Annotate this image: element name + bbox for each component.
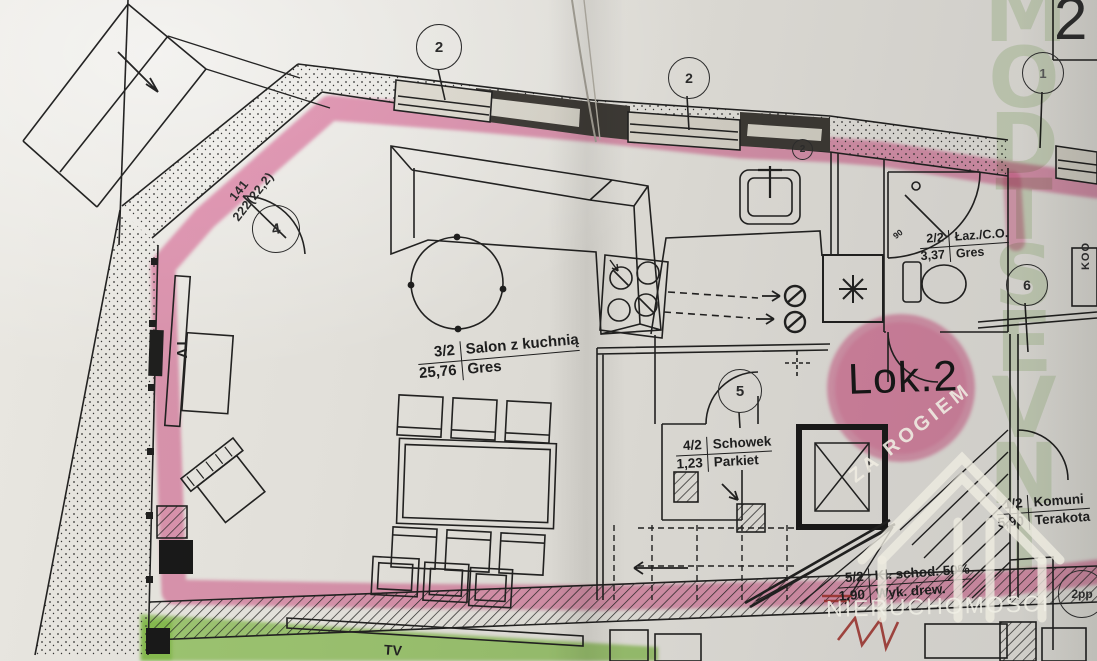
room-area: 3,37 <box>920 247 951 265</box>
floorplan-photo: M O D T S E V N I <box>0 0 1097 661</box>
asterisk-symbol <box>839 275 867 303</box>
side-room-text: KOO <box>1080 226 1092 286</box>
kitchen <box>600 166 883 338</box>
corridor-door <box>1018 430 1068 480</box>
sofa <box>391 146 661 334</box>
kitchen-counter <box>651 231 822 334</box>
round-rug <box>408 234 507 333</box>
room-number: 1/2 <box>996 495 1029 515</box>
dining-chairs <box>391 395 551 575</box>
armchair <box>181 438 271 527</box>
marker-bathroom: 6 <box>1006 264 1048 306</box>
boiler <box>823 255 883 322</box>
marker-window-top-left: 2 <box>416 24 462 70</box>
room-number: 4/2 <box>675 437 708 457</box>
room-area: 25,76 <box>418 361 463 383</box>
marker-storage-door: 5 <box>718 369 762 413</box>
sheet-number: 2 <box>1054 0 1087 53</box>
toilet <box>903 262 966 303</box>
room-label-bathroom: 2/2 Łaz./C.O. 3,37 Gres <box>919 226 1010 264</box>
stair-direction-arrow <box>634 562 688 574</box>
dining-table <box>397 438 557 528</box>
room-label-storage: 4/2 Schowek 1,23 Parkiet <box>675 434 772 474</box>
room-area: 5,90 <box>997 513 1030 532</box>
marker-wall-small: 2 <box>792 139 813 160</box>
sink <box>740 166 800 224</box>
room-area: 1,23 <box>676 455 709 474</box>
marker-window-right: 1 <box>1022 52 1064 94</box>
room-floor: Parkiet <box>708 451 772 471</box>
tv-label: TV <box>173 339 190 358</box>
direction-arrow <box>118 52 158 92</box>
marker-window-kitchen: 2 <box>668 57 710 99</box>
room-number: 5/2 <box>837 568 870 588</box>
tv-label-bottom: TV <box>383 641 402 658</box>
window-right-corner <box>1056 146 1097 184</box>
floorplan-drawing <box>0 0 1097 661</box>
connection-symbols <box>664 286 805 332</box>
room-label-corridor: 1/2 Komuni 5,90 Terakota <box>996 491 1091 532</box>
axis-cross <box>785 351 810 376</box>
shaft-square <box>722 484 765 532</box>
